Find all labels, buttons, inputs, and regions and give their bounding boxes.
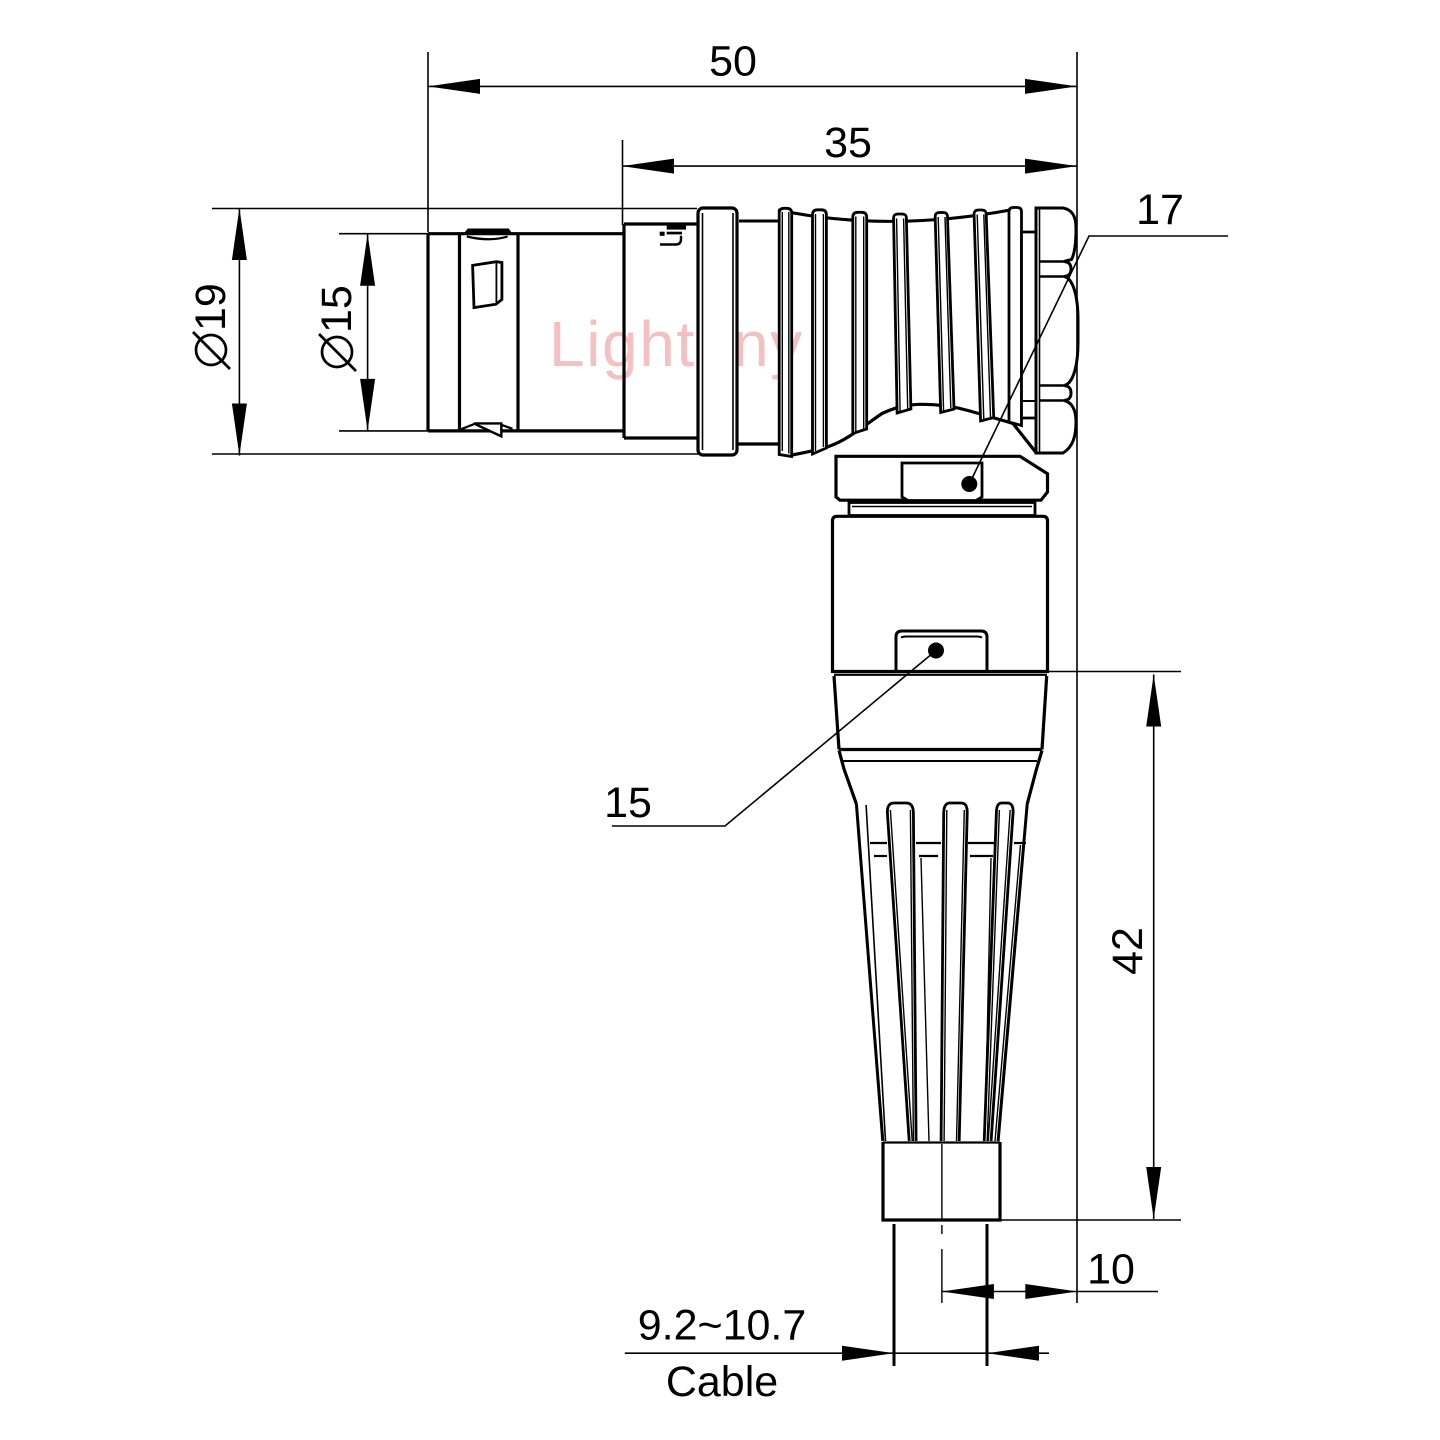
- svg-text:10: 10: [1087, 1246, 1135, 1294]
- svg-text:9.2~10.7: 9.2~10.7: [638, 1302, 807, 1350]
- svg-text:Lightany: Lightany: [549, 308, 804, 380]
- svg-text:35: 35: [824, 119, 872, 167]
- svg-text:Cable: Cable: [666, 1358, 778, 1406]
- svg-text:15: 15: [604, 779, 652, 827]
- svg-text:50: 50: [709, 38, 757, 86]
- svg-text:15: 15: [313, 285, 361, 333]
- svg-text:42: 42: [1104, 927, 1152, 975]
- svg-text:17: 17: [1136, 186, 1184, 234]
- svg-text:19: 19: [187, 283, 235, 331]
